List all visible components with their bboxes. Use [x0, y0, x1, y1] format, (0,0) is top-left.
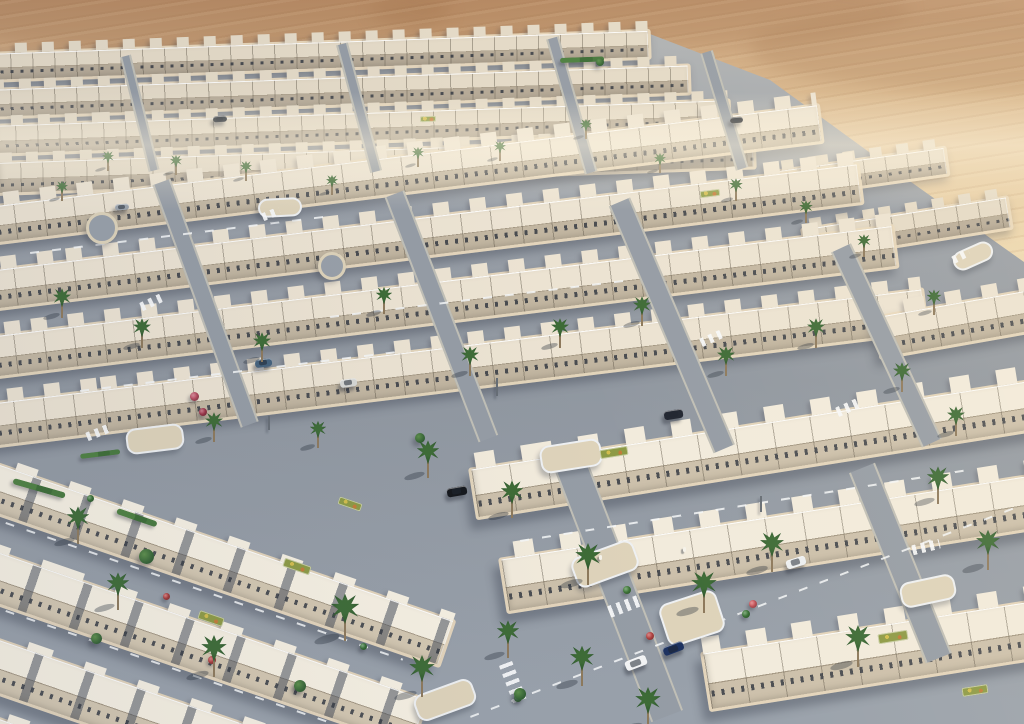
palm-crown — [56, 180, 68, 194]
palm-tree — [729, 177, 743, 200]
palm-tree — [417, 439, 440, 478]
palm-crown — [807, 317, 825, 338]
palm-tree — [497, 619, 520, 658]
palm-tree — [205, 411, 223, 442]
palm-tree — [633, 295, 651, 326]
palm-tree — [53, 287, 71, 318]
palm-crown — [412, 146, 424, 160]
palm-crown — [310, 420, 327, 439]
flower-bush — [360, 643, 367, 650]
leafy-tree — [91, 633, 102, 644]
palm-crown — [893, 361, 911, 382]
palm-crown — [67, 505, 90, 532]
palm-tree — [654, 152, 666, 173]
roof-garden — [420, 116, 436, 123]
palm-crown — [927, 289, 942, 307]
palm-crown — [551, 317, 569, 338]
palm-tree — [56, 180, 68, 201]
palm-crown — [331, 592, 360, 626]
palm-tree — [570, 644, 594, 686]
palm-tree — [412, 146, 424, 167]
palm-crown — [497, 619, 520, 646]
palm-crown — [376, 286, 393, 305]
flower-bush — [646, 632, 654, 640]
pedestrian — [683, 547, 686, 552]
palm-tree — [331, 592, 360, 641]
palm-tree — [893, 361, 911, 392]
palm-crown — [326, 174, 338, 188]
flower-bush — [163, 593, 170, 600]
palm-tree — [67, 505, 90, 544]
palm-tree — [857, 233, 871, 256]
palm-crown — [205, 411, 223, 432]
flower-bush — [87, 495, 94, 502]
palm-tree — [551, 317, 569, 348]
palm-tree — [635, 685, 661, 724]
palm-tree — [326, 174, 338, 195]
palm-crown — [240, 160, 252, 174]
palm-crown — [580, 118, 592, 132]
palm-tree — [409, 653, 435, 697]
palm-tree — [580, 118, 592, 139]
palm-crown — [461, 345, 479, 366]
palm-crown — [857, 233, 871, 249]
light-pole — [496, 378, 498, 396]
palm-tree — [717, 345, 735, 376]
palm-tree — [927, 465, 950, 504]
palm-tree — [976, 528, 1000, 570]
flower-bush — [742, 610, 750, 618]
flower-bush — [190, 392, 199, 401]
palm-crown — [570, 644, 594, 672]
palm-crown — [253, 331, 271, 352]
flower-bush — [749, 600, 757, 608]
palm-tree — [799, 199, 813, 222]
palm-crown — [201, 633, 227, 663]
palm-tree — [691, 569, 717, 613]
palm-crown — [760, 530, 784, 558]
palm-tree — [240, 160, 252, 181]
palm-crown — [635, 685, 661, 715]
palm-tree — [845, 623, 871, 667]
palm-crown — [729, 177, 743, 193]
palm-crown — [417, 439, 440, 466]
flower-bush — [623, 586, 631, 594]
palm-tree — [927, 289, 942, 315]
palm-tree — [310, 420, 327, 449]
leafy-tree — [294, 680, 306, 692]
palm-tree — [170, 154, 182, 175]
render-stage — [0, 0, 1024, 724]
palm-crown — [799, 199, 813, 215]
palm-tree — [501, 479, 524, 518]
palm-tree — [947, 405, 965, 436]
palm-crown — [717, 345, 735, 366]
palm-crown — [654, 152, 666, 166]
leafy-tree — [514, 688, 526, 700]
palm-crown — [927, 465, 950, 492]
palm-tree — [575, 541, 601, 585]
light-pole — [760, 496, 762, 512]
palm-crown — [409, 653, 435, 683]
palm-tree — [133, 317, 151, 348]
cul-de-sac — [86, 212, 118, 244]
palm-crown — [501, 479, 524, 506]
palm-tree — [494, 140, 506, 161]
palm-crown — [575, 541, 601, 571]
light-pole — [268, 416, 270, 430]
leafy-tree — [139, 549, 154, 564]
palm-tree — [201, 633, 227, 677]
palm-tree — [102, 150, 114, 171]
palm-crown — [845, 623, 871, 653]
leafy-tree — [596, 58, 604, 66]
palm-tree — [760, 530, 784, 572]
palm-tree — [461, 345, 479, 376]
palm-tree — [807, 317, 825, 348]
palm-crown — [133, 317, 151, 338]
palm-crown — [102, 150, 114, 164]
palm-crown — [53, 287, 71, 308]
palm-crown — [976, 528, 1000, 556]
palm-crown — [947, 405, 965, 426]
palm-tree — [253, 331, 271, 362]
palm-crown — [691, 569, 717, 599]
palm-crown — [170, 154, 182, 168]
palm-crown — [107, 571, 130, 598]
palm-tree — [107, 571, 130, 610]
car — [730, 117, 743, 124]
palm-crown — [633, 295, 651, 316]
cul-de-sac — [318, 252, 346, 280]
car — [213, 116, 227, 123]
palm-tree — [376, 286, 393, 315]
palm-crown — [494, 140, 506, 154]
